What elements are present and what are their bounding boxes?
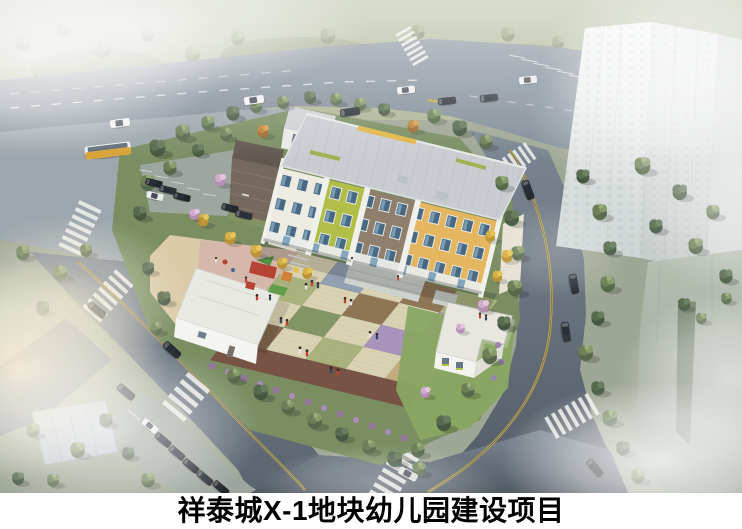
fog-layer — [0, 0, 742, 493]
caption-text: 祥泰城X-1地块幼儿园建设项目 — [177, 497, 564, 525]
rendering-svg — [0, 0, 742, 493]
rendering-screenshot: 祥泰城X-1地块幼儿园建设项目 — [0, 0, 742, 529]
aerial-rendering — [0, 0, 742, 493]
caption-bar: 祥泰城X-1地块幼儿园建设项目 — [0, 493, 742, 529]
